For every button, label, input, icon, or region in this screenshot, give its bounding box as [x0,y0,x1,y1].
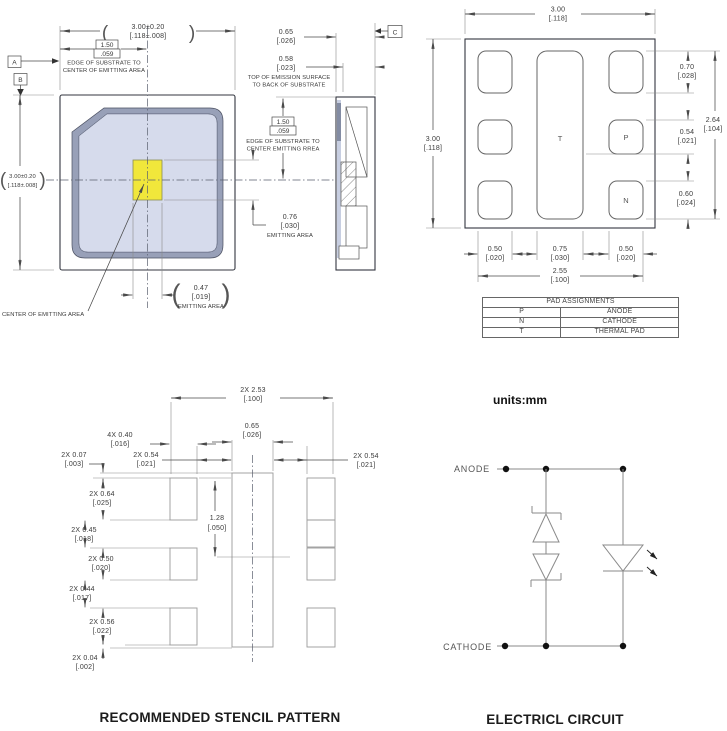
dim-emit-h-label: EMITTING AREA [267,233,313,239]
dim-004-mm: 2X 0.04 [72,655,98,662]
dim-075-in: [.030] [551,255,570,262]
pad-dim-h-mm: 3.00 [426,136,440,143]
pad-left-mid [478,120,512,154]
dim-060-in: [.024] [677,200,696,207]
edge-note-1: EDGE OF SUBSTRATE TO [67,61,141,67]
dim-t1-mm: 0.65 [279,29,293,36]
pad-table-fn: CATHODE [561,318,679,328]
dim-045-mm: 2X 0.45 [71,527,97,534]
dim-t2-mm: 0.58 [279,56,293,63]
dim-t2-in: [.023] [277,65,296,72]
pad-label-p: P [623,133,628,142]
led-diode [603,545,643,571]
dim-045-in: [.018] [75,536,94,543]
drawing-svg: ( 3.00±0.20 [.118±.008] ) 1.50 .059 EDGE… [0,0,727,731]
dim-054r-mm: 2X 0.54 [353,453,379,460]
pad-dim-h-in: [.118] [424,145,442,152]
pad-left-top [478,51,512,93]
dim-007-mm: 2X 0.07 [61,452,87,459]
dim-top-width-mm: 3.00±0.20 [132,24,165,31]
emission-note-2: TO BACK OF SUBSTRATE [253,83,326,89]
pad-view: T P N 3.00 [.118] 3.00 [.118] 0.70 [.028… [424,7,722,285]
stencil-pattern: 2X 2.53 [.100] 0.65 [.026] 4X 0.40 [.016… [61,387,379,671]
dim-044-in: [.017] [73,595,92,602]
dim-edge-in: .059 [101,51,114,58]
table-row: T THERMAL PAD [483,328,679,338]
dim-left-height-mm: 3.00±0.20 [9,174,36,180]
dim-264-in: [.104] [704,126,723,133]
stencil-left-mid [170,548,197,580]
junction-dot [620,643,626,649]
pad-label-t: T [558,134,563,143]
dim-070-mm: 0.70 [680,64,694,71]
dim-044-mm: 2X 0.44 [69,586,95,593]
dim-255-mm: 2.55 [553,268,567,275]
junction-dot [503,466,509,472]
pad-right-top [609,51,643,93]
dim-040-in: [.016] [111,441,130,448]
side-edge-note-2: CENTER EMITTING RREA [247,147,320,153]
dim-056-in: [.022] [93,628,112,635]
anode-label: ANODE [454,464,490,474]
pad-table-fn: THERMAL PAD [561,328,679,338]
dim-056-mm: 2X 0.56 [89,619,115,626]
paren: ) [39,170,45,191]
edge-note-2: CENTER OF EMITTING AREA [63,68,145,74]
dim-050l-in: [.020] [486,255,505,262]
stencil-left-top [170,478,197,520]
pad-table-fn: ANODE [561,308,679,318]
dim-left-height-in: [.118±.008] [8,183,38,189]
stencil-right-mid [307,548,335,580]
pad-assignments-table: PAD ASSIGNMENTS P ANODE N CATHODE T THER… [482,297,679,338]
dim-128-in: [.050] [208,525,227,532]
pad-table-title: PAD ASSIGNMENTS [483,298,679,308]
dim-050r-mm: 0.50 [619,246,633,253]
pad-table-pad: P [483,308,561,318]
dim-004-in: [.002] [76,664,95,671]
dim-emit-w-in: [.019] [192,294,211,301]
pad-table-pad: N [483,318,561,328]
side-edge-in: .059 [277,128,290,135]
dim-emit-w-label: EMITTING AREA [178,304,224,310]
dim-054r-in: [.021] [357,462,376,469]
units-note: units:mm [470,393,570,407]
dim-edge-mm: 1.50 [101,42,114,49]
pad-dim-w-in: [.118] [549,16,567,23]
dim-064-mm: 2X 0.64 [89,491,115,498]
dim-emit-h-mm: 0.76 [283,214,297,221]
junction-dot [502,643,508,649]
dim-070-in: [.028] [678,73,697,80]
dim-065-mm: 0.65 [245,423,259,430]
dim-emit-h-in: [.030] [281,223,300,230]
zener-diode-up [533,514,559,542]
stencil-right-bot [307,608,335,647]
dim-064-in: [.025] [93,500,112,507]
stencil-left-bot [170,608,197,645]
dim-065-in: [.026] [243,432,262,439]
dim-050r-in: [.020] [617,255,636,262]
emission-note-1: TOP OF EMISSION SURFACE [248,75,331,81]
table-row: N CATHODE [483,318,679,328]
dim-253-in: [.100] [244,396,263,403]
dim-054-in: [.021] [678,138,697,145]
dim-054l-in: [.021] [137,461,156,468]
center-of-emitting-area-note: CENTER OF EMITTING AREA [2,312,84,318]
dim-050l-mm: 0.50 [488,246,502,253]
emission-surface-dark [337,103,341,141]
dim-top-width-in: [.118±.008] [130,33,167,40]
cathode-label: CATHODE [443,642,492,652]
datasheet-drawing: ( 3.00±0.20 [.118±.008] ) 1.50 .059 EDGE… [0,0,727,731]
pad-label-n: N [623,196,628,205]
dim-264-mm: 2.64 [706,117,720,124]
dim-t1-in: [.026] [277,38,296,45]
light-emission-arrow [647,567,657,576]
light-emission-arrow [647,550,657,559]
table-row: P ANODE [483,308,679,318]
datum-c-arrow [375,28,381,34]
electrical-circuit: ANODE CATHODE [443,464,657,652]
paren: ( [0,170,7,191]
side-edge-mm: 1.50 [277,119,290,126]
circuit-title: ELECTRICL CIRCUIT [455,712,655,727]
pad-left-bot [478,181,512,219]
dim-054l-mm: 2X 0.54 [133,452,159,459]
datum-a: A [12,60,17,67]
dim-050-mm: 2X 0.50 [88,556,114,563]
datum-b: B [18,77,23,84]
dim-253-mm: 2X 2.53 [240,387,266,394]
side-edge-note-1: EDGE OF SUBSTRATE TO [246,139,320,145]
pad-dim-w-mm: 3.00 [551,7,565,14]
paren: ) [189,23,195,44]
dim-emit-w-mm: 0.47 [194,285,208,292]
paren: ) [222,279,231,309]
datum-a-arrow [52,58,59,64]
dim-054-mm: 0.54 [680,129,694,136]
dim-040-mm: 4X 0.40 [107,432,133,439]
stencil-title: RECOMMENDED STENCIL PATTERN [70,710,370,725]
zener-diode-down [533,554,559,580]
dim-050-in: [.020] [92,565,111,572]
stencil-right-top [307,478,335,547]
dim-060-mm: 0.60 [679,191,693,198]
dim-128-mm: 1.28 [210,515,224,522]
dim-075-mm: 0.75 [553,246,567,253]
datum-c: C [393,30,398,37]
dim-255-in: [.100] [551,277,570,284]
junction-dot [543,643,549,649]
dim-007-in: [.003] [65,461,84,468]
pad-table-pad: T [483,328,561,338]
